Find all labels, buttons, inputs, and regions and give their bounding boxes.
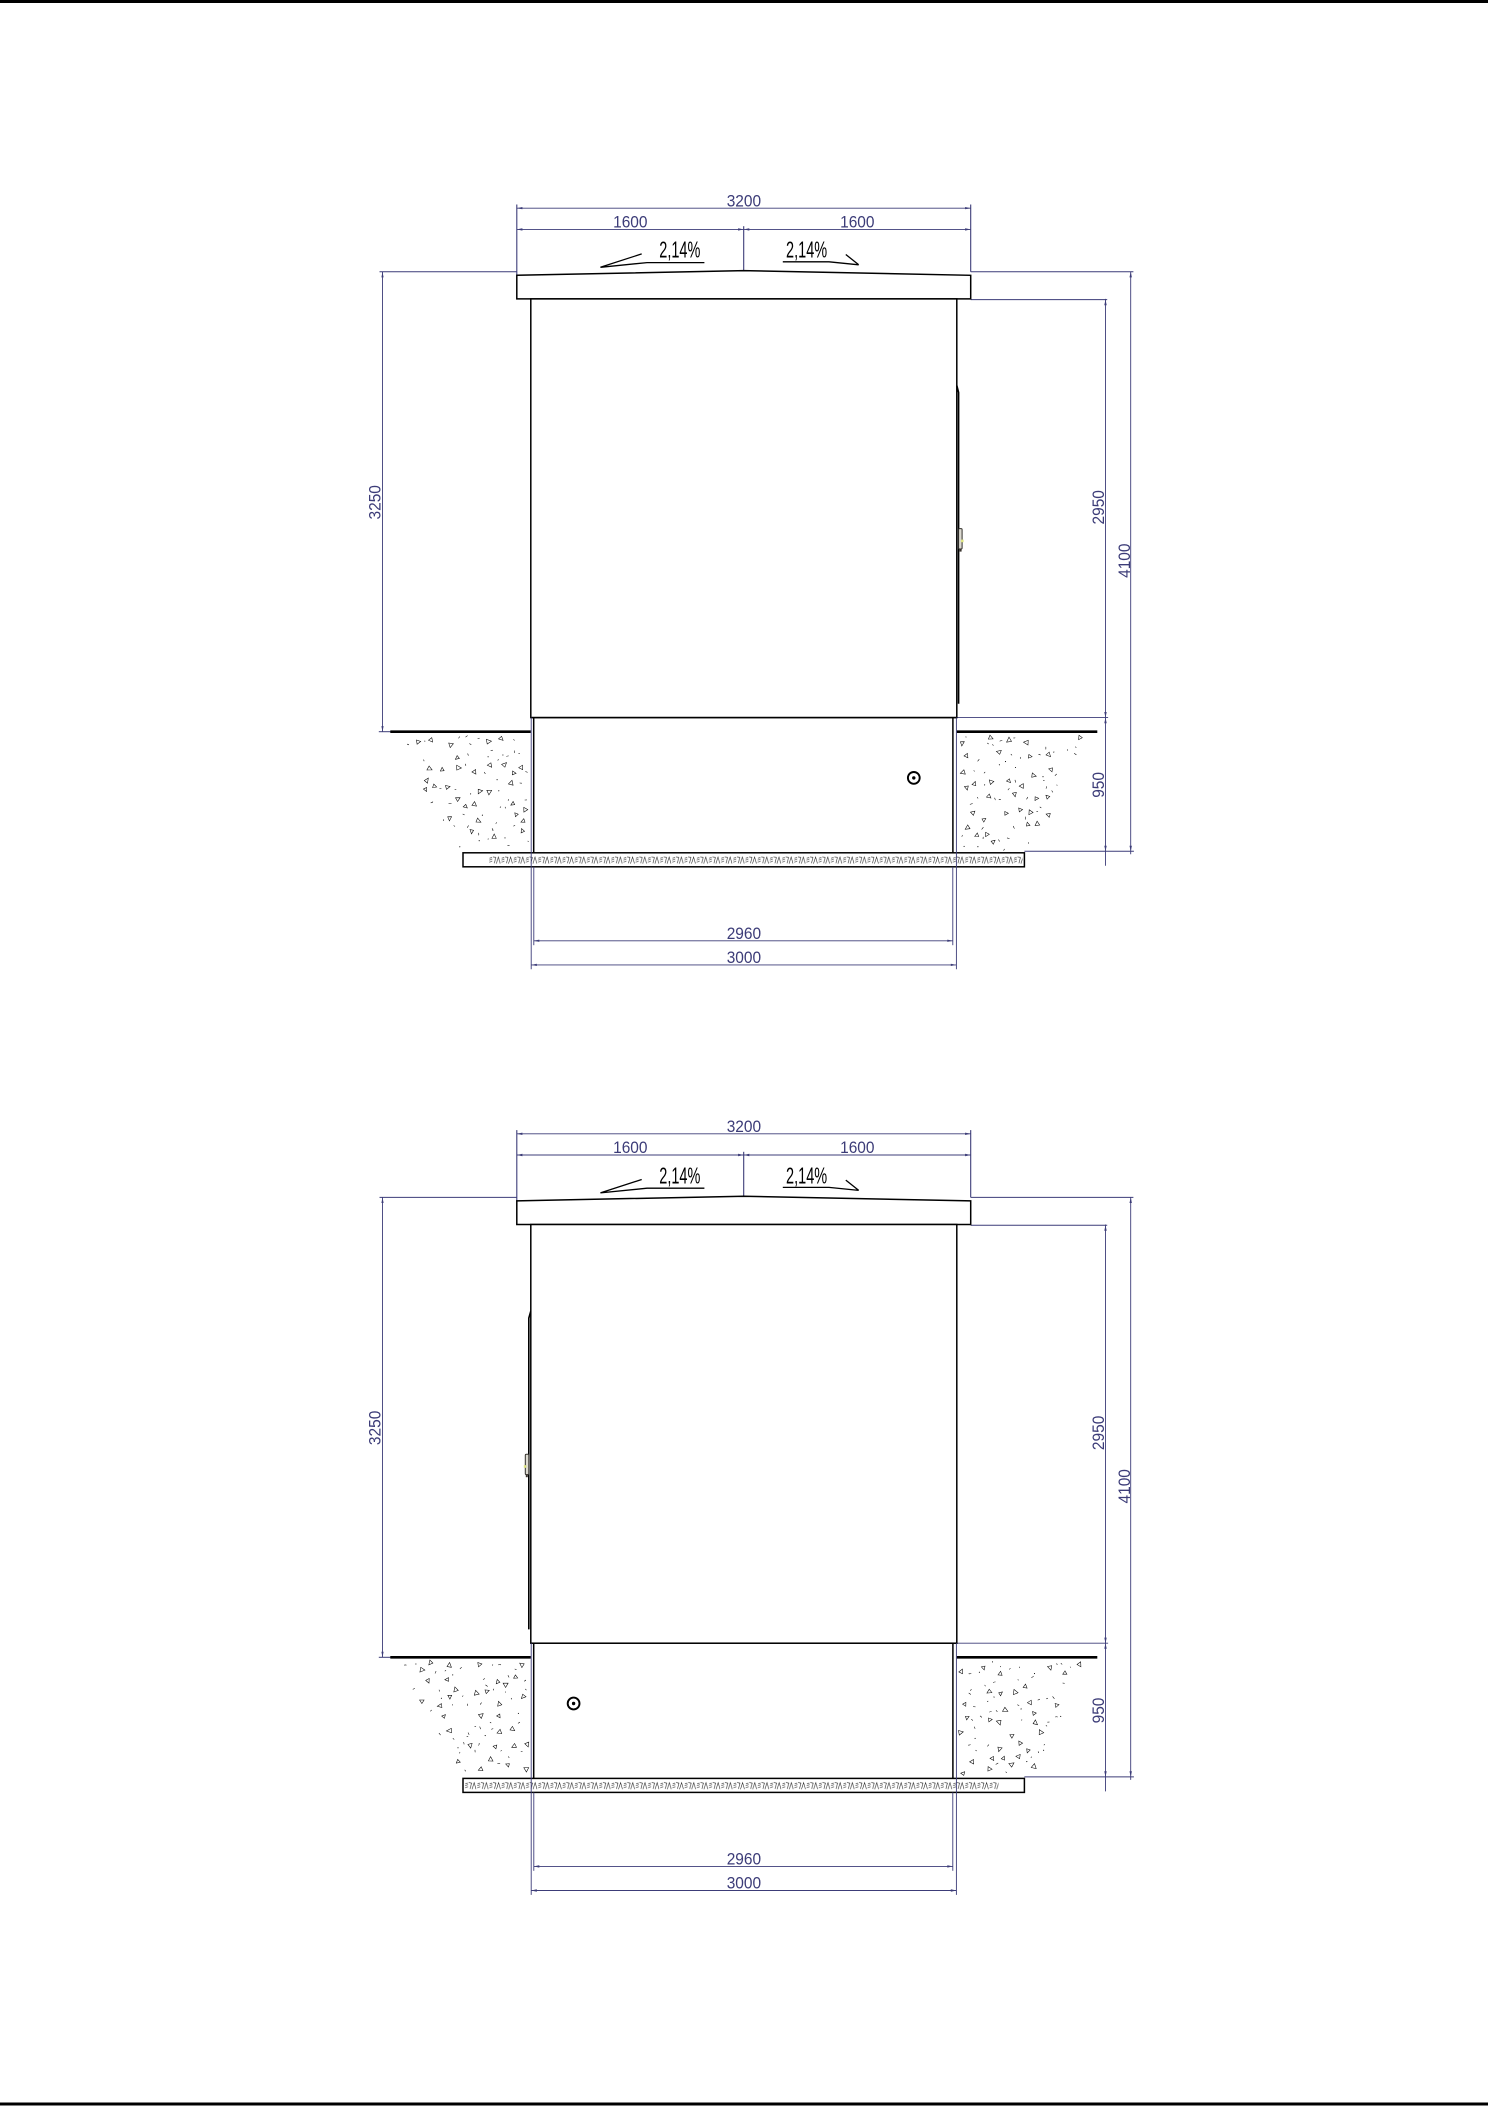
svg-text:1600: 1600 — [840, 213, 874, 232]
svg-text:950: 950 — [1090, 1698, 1109, 1724]
svg-text:2960: 2960 — [727, 1850, 761, 1869]
svg-text:2960: 2960 — [727, 924, 761, 943]
svg-text:3000: 3000 — [727, 948, 761, 967]
svg-text:1600: 1600 — [613, 1138, 647, 1157]
svg-text:2,14%: 2,14% — [786, 1164, 827, 1189]
svg-text:3200: 3200 — [727, 1117, 761, 1136]
svg-text:2,14%: 2,14% — [659, 239, 700, 264]
svg-text:2950: 2950 — [1089, 1416, 1108, 1450]
svg-text:3200: 3200 — [727, 192, 761, 211]
svg-text:3250: 3250 — [366, 485, 385, 519]
svg-text:1600: 1600 — [613, 213, 647, 232]
svg-text:3250: 3250 — [366, 1411, 385, 1445]
svg-text:2950: 2950 — [1089, 490, 1108, 524]
svg-text:2,14%: 2,14% — [659, 1164, 700, 1189]
svg-text:4100: 4100 — [1115, 543, 1134, 577]
svg-text:1600: 1600 — [840, 1138, 874, 1157]
svg-text:3000: 3000 — [727, 1874, 761, 1893]
svg-text:2,14%: 2,14% — [786, 239, 827, 264]
svg-text:950: 950 — [1090, 772, 1109, 798]
svg-text:4100: 4100 — [1115, 1469, 1134, 1503]
